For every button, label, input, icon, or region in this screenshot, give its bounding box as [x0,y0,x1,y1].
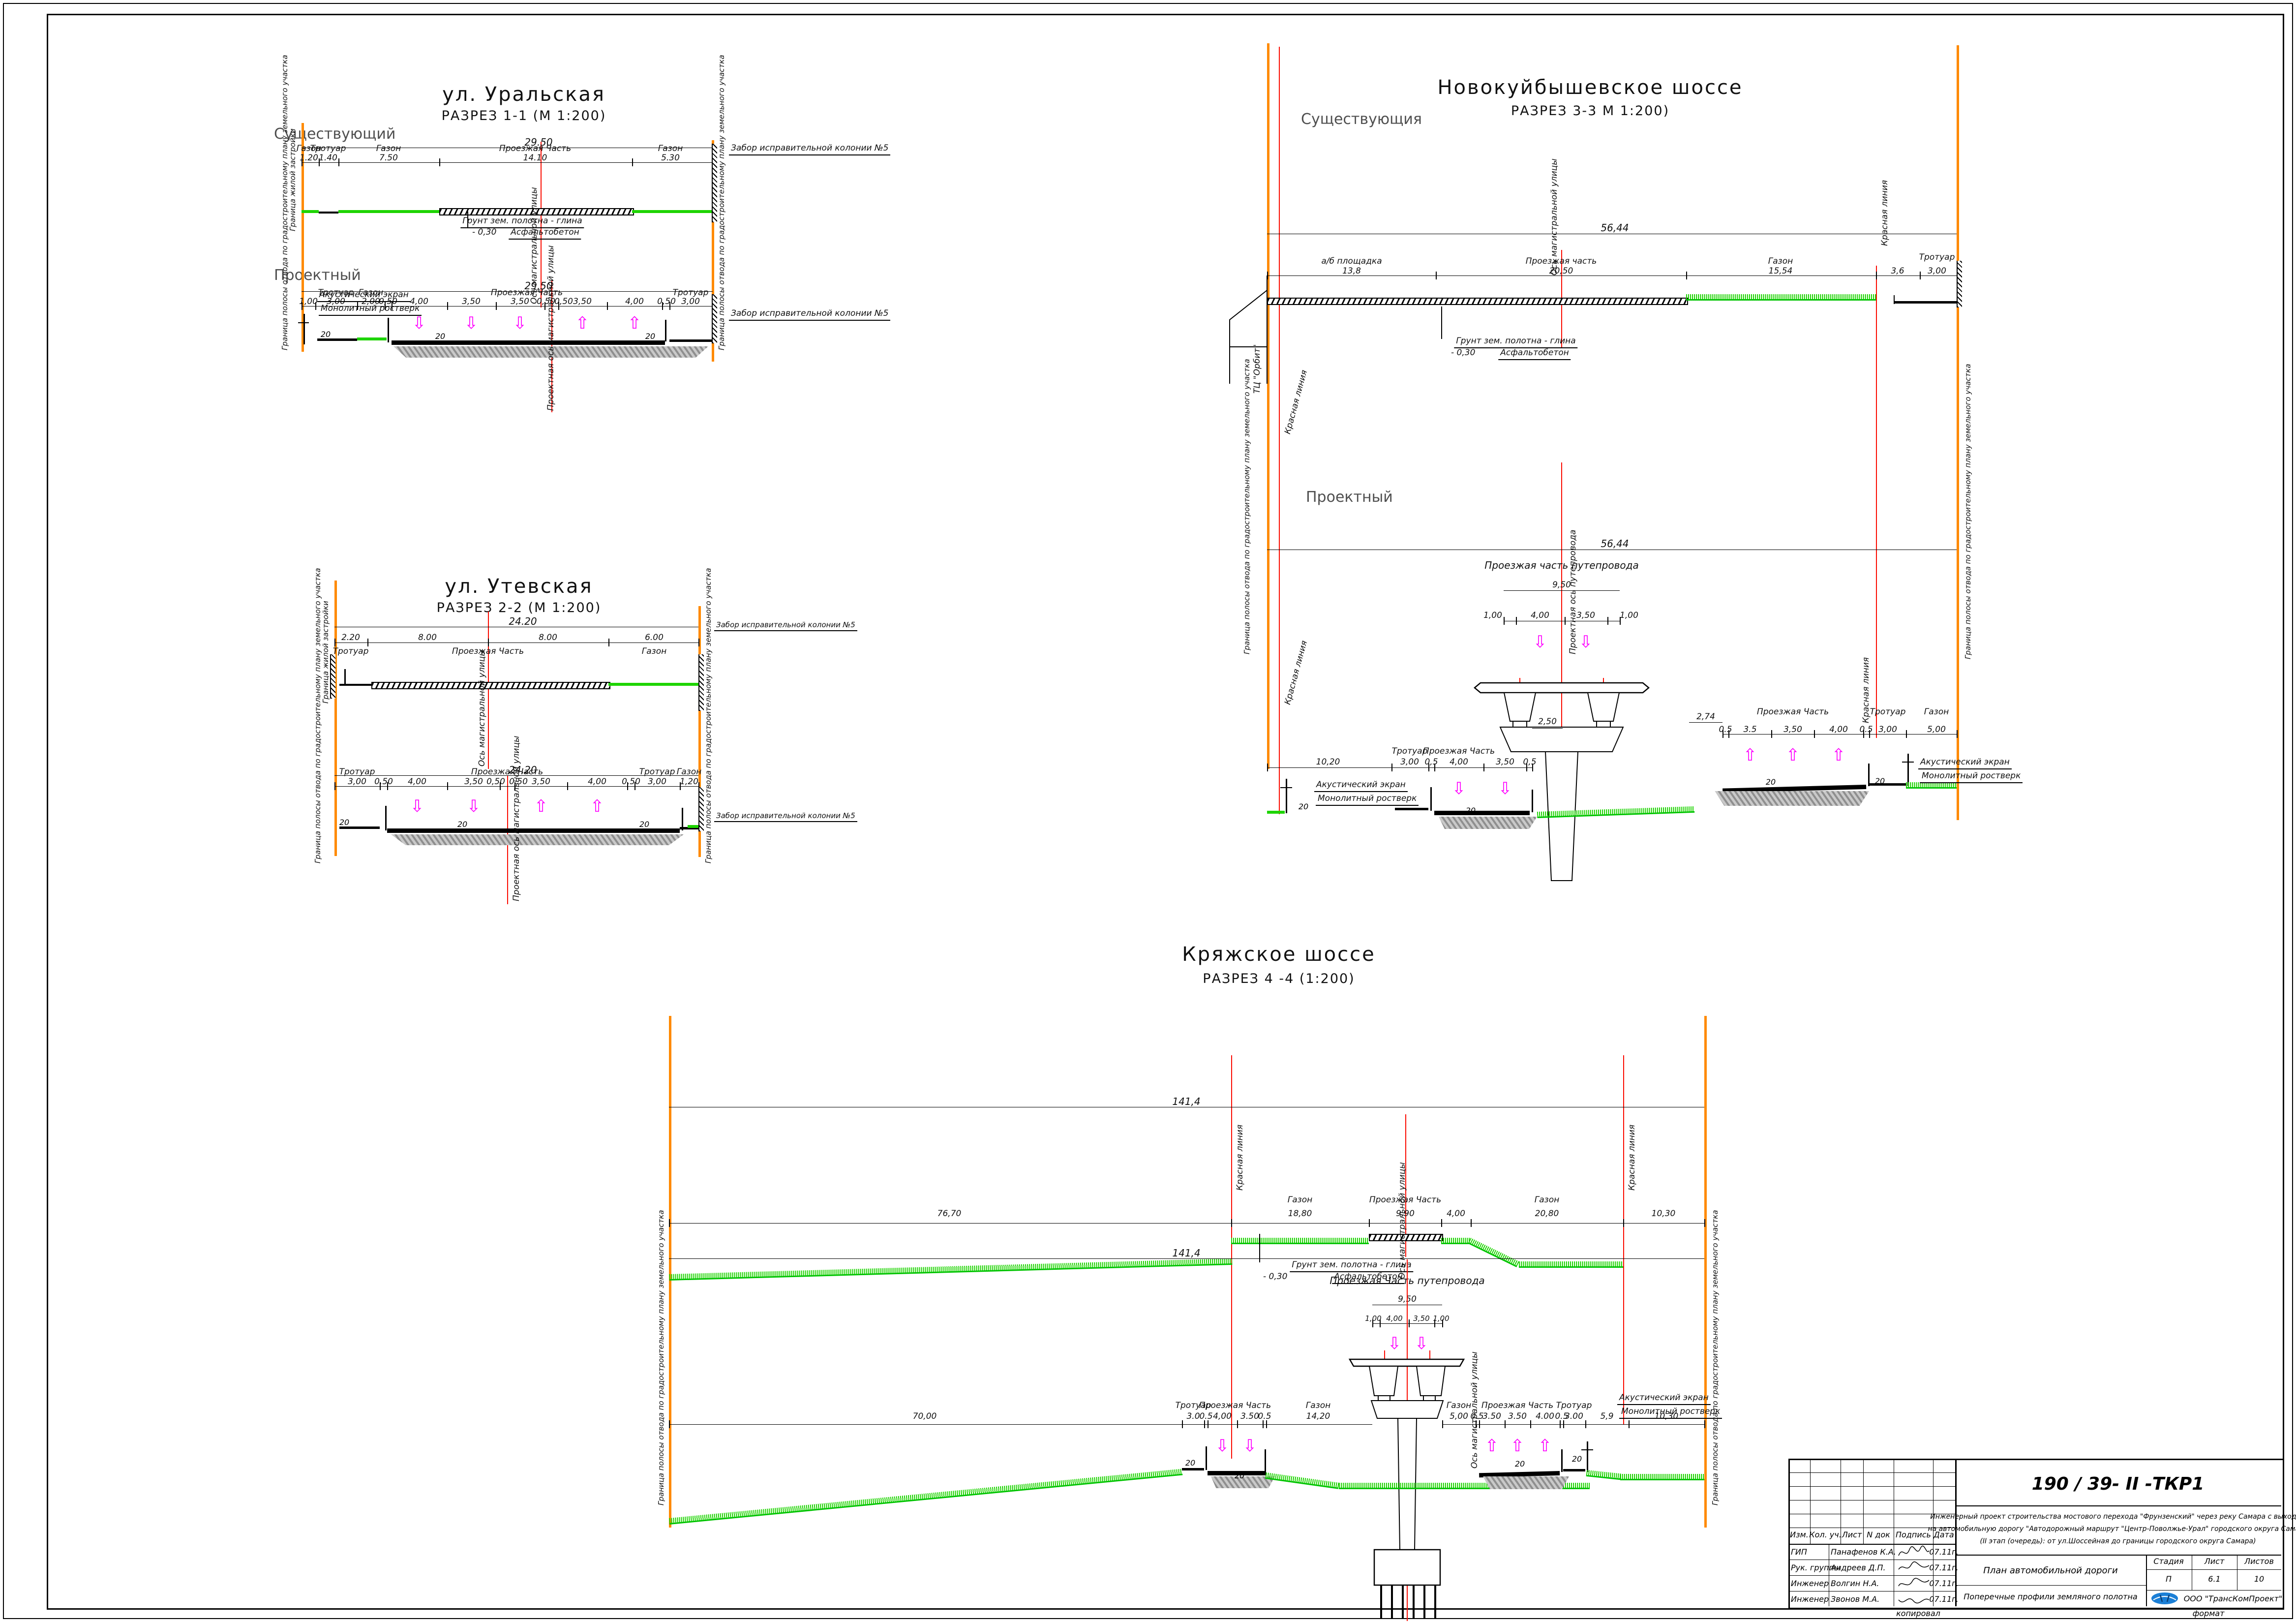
stamp-line [1788,1500,1955,1500]
slope-mark: 20 [1766,778,1776,786]
dim-value: 3.0 [1186,1412,1200,1422]
dim-value: 3.50 [1240,1412,1259,1422]
zone-label: Проезжая часть [1526,257,1597,267]
fence-hatch [698,787,704,831]
zone-label: Тротуар [333,647,369,657]
design-label: Проектный [1306,490,1393,505]
slope-arrow-up: ⇧ [1743,747,1757,764]
sheet-value: 6.1 [2208,1575,2220,1583]
curb-post [1532,790,1533,812]
fence-hatch [330,654,335,699]
dim-value: 70,00 [913,1412,937,1422]
dim-value: 3,50 [1783,725,1802,735]
border-label: Граница жилой застройки [322,601,330,704]
section2-title: ул. Утевская [445,577,593,596]
dim-value: 0.5 [1199,1412,1212,1422]
acoustic-screen-post [1907,754,1909,786]
lawn-strip [688,825,698,828]
acoustic-screen-note: Акустический экран [317,290,411,302]
slope-mark: 20 [645,333,655,340]
slope-arrow-down: ⇩ [412,315,426,332]
dim-value: 3,00 [1878,725,1897,735]
dim-value: 3,50 [462,297,481,307]
roadbase [1483,1476,1569,1489]
zone-label: Проезжая Часть [1199,1401,1271,1411]
tick [1442,1420,1443,1428]
red-line [1231,1055,1232,1459]
boundary-orange-line [1704,1016,1707,1528]
zone-label: Проезжая Часть [1757,707,1829,717]
dim-line [669,1107,1704,1107]
sidewalk [1563,1469,1585,1471]
tick [698,639,699,646]
section3-subtitle: РАЗРЕЗ 3-3 М 1:200) [1511,104,1669,118]
sheets-header: Листов [2244,1558,2274,1565]
zone-label: Проезжая Часть [499,144,571,154]
stamp-role: ГИП [1791,1548,1807,1556]
soil-level: - 0,30 [1451,348,1475,358]
tick [1560,1420,1561,1428]
lawn-strip [302,210,319,213]
tick [1267,272,1268,279]
slope-arrow-down: ⇩ [1498,780,1512,797]
dim-line [302,162,713,163]
tick [632,158,633,166]
border-label: Граница полосы отвода по градостроительн… [1243,359,1251,654]
stamp-line [1788,1560,1955,1560]
dim-value: 5,00 [1450,1412,1468,1422]
soil-note: Грунт зем. полотна - глина [1454,337,1577,348]
dim-total: 56,44 [1601,222,1629,234]
zone-label: Тротуар [339,767,375,777]
tick [1409,1319,1410,1327]
acoustic-screen-note: Акустический экран [1314,780,1408,792]
tick [1237,1420,1238,1428]
axis-label: Проектная ось магистральной улицы [513,736,521,901]
axis-label: Ось магистральной улицы [1471,1351,1479,1469]
stamp-line [1788,1575,1955,1576]
fence-hatch [698,654,704,711]
dim-value: 4,00 [1447,1209,1465,1219]
overpass-label: Проезжая часть путепровода [1484,560,1638,571]
border-label: Граница полосы отвода по градостроительн… [281,55,289,350]
dim-value: 3.50 [1482,1412,1501,1422]
fence-hatch [712,294,717,343]
dim-value: 7.50 [379,153,398,163]
red-line-label: Красная линия [1236,1125,1244,1191]
lawn-strip [357,337,387,340]
dim-line [1689,722,1722,723]
zone-label: Тротуар [639,767,675,777]
slope-mark: 20 [639,821,649,828]
dim-total: 24.20 [509,616,537,627]
zone-label: Тротуар [1556,1401,1592,1411]
stamp-line [1788,1591,1955,1591]
tick [1204,1420,1205,1428]
grass-strip [1441,1238,1471,1244]
tick [1436,272,1437,279]
dim-value: 4,00 [1531,611,1549,621]
dim-line [669,1223,1704,1224]
dim-line [669,1258,1704,1259]
stamp-col-header: Лист [1842,1531,1862,1539]
screen-crossbar [1280,787,1292,788]
tick [1441,1219,1442,1227]
red-line [1876,266,1877,738]
tick [1483,764,1484,771]
sheets-value: 10 [2254,1575,2264,1583]
zone-label: Газон [642,647,666,657]
drawing-sheet: ул. Уральская РАЗРЕЗ 1-1 (М 1:200) Сущес… [0,0,2296,1622]
format-label: формат [2193,1610,2225,1618]
slope-arrow-up: ⇧ [628,315,642,332]
dim-value: 5.30 [661,153,680,163]
grass-strip [1686,294,1876,301]
slope-mark: 20 [1185,1459,1195,1467]
section4-title: Кряжское шоссе [1182,945,1376,964]
fence-note: Забор исправительной колонии №5 [714,812,857,822]
stamp-line [1955,1505,2281,1506]
tick [1920,272,1921,279]
boundary-orange-line [334,581,337,856]
dim-value: 0,50 [374,777,393,787]
slope-mark: 20 [1235,1472,1244,1480]
acoustic-screen-post [1587,1441,1588,1472]
stamp-line [2237,1555,2237,1590]
curb-post [665,320,666,341]
tick [1263,1420,1264,1428]
stamp-name: Звонов М.А. [1831,1595,1879,1603]
boundary-orange-line [1957,45,1959,820]
axis-red-line [488,612,489,769]
slope-arrow-down: ⇩ [1243,1438,1257,1454]
dim-total: 141,4 [1172,1248,1200,1259]
section4-subtitle: РАЗРЕЗ 4 -4 (1:200) [1203,972,1355,985]
stage-header: Стадия [2153,1558,2183,1565]
dim-value: 3.00 [1565,1412,1583,1422]
tick [439,158,440,166]
tick [1369,1219,1370,1227]
rostverk-note: Монолитный ростверк [1316,794,1419,806]
dim-value: 20,80 [1535,1209,1559,1219]
dim-value: 3,50 [1413,1315,1429,1323]
tick [698,782,699,790]
dim-value: 8.00 [539,633,557,643]
soil-note: Грунт зем. полотна - глина [460,216,584,228]
red-line-label: Красная линия [1881,180,1889,246]
dim-value: 4,00 [1386,1315,1402,1323]
zone-label: Газон [1288,1195,1312,1205]
stamp-col-header: Кол. уч. [1809,1531,1842,1539]
axis-label: Проектная ось путепровода [1569,530,1577,654]
dim-line [1267,234,1957,234]
dim-value: 10,20 [1316,758,1340,767]
tick [1957,730,1958,738]
tick [447,782,448,790]
slope-mark: 20 [321,331,331,338]
border-label: Граница жилой застройки [289,128,297,231]
dim-value: 1.20 [300,153,318,163]
screen-crossbar [1581,1449,1593,1450]
dim-line [1532,728,1563,729]
stamp-name: Андреев Д.П. [1831,1564,1886,1572]
dim-value: 0.5 [1719,725,1732,735]
dim-value: 3,50 [464,777,483,787]
dim-value: 3,00 [348,777,366,787]
zone-label: Проезжая Часть [452,647,524,657]
slope-arrow-down: ⇩ [1415,1335,1429,1352]
tick [447,302,448,310]
dim-total: 56,44 [1601,538,1629,550]
company-logo [2150,1592,2179,1605]
tick [1906,730,1907,738]
dim-value: 3,50 [532,777,550,787]
zone-label: Газон [1447,1401,1471,1411]
tick [1267,764,1268,771]
stamp-line [1955,1585,2146,1586]
fence-note: Забор исправительной колонии №5 [729,309,890,321]
soil-note: Грунт зем. полотна - глина [1290,1260,1413,1272]
grass-strip [1906,782,1957,789]
stamp-line [1788,1472,1955,1473]
soil-level: - 0,30 [472,228,496,238]
signature [1897,1576,1931,1590]
dim-value: 3,00 [1928,267,1946,276]
dim-line [1267,767,1532,768]
tick [1629,1420,1630,1428]
roadbase [1712,791,1869,806]
red-line [1279,47,1280,814]
tick [1686,272,1687,279]
doc-number: 190 / 39- II -ТКР1 [2032,1474,2205,1494]
project-desc-line3: (II этап (очередь): от ул.Шоссейная до г… [1980,1538,2256,1545]
slope-arrow-up: ⇧ [1832,747,1846,764]
curb-post [388,318,389,342]
dim-value: 2,50 [1538,717,1557,727]
tick [712,302,713,310]
tick [1607,617,1608,625]
dim-value: 2,74 [1696,712,1715,722]
lawn-strip [1267,811,1285,814]
slope-mark: 20 [435,333,445,340]
dim-value: 5,9 [1600,1412,1613,1422]
slope-arrow-up: ⇧ [575,315,590,332]
slope-arrow-down: ⇩ [467,798,481,815]
zone-label: Газон [376,144,401,154]
slope-arrow-down: ⇩ [1388,1335,1402,1352]
tick [1182,1420,1183,1428]
slope-arrow-down: ⇩ [1452,780,1466,797]
zone-label: Тротуар [1870,707,1906,717]
tick [1585,1420,1586,1428]
roadbase [391,834,684,845]
rostverk-note: Монолитный ростверк [319,304,422,316]
sheet-header: Лист [2205,1558,2225,1565]
border-label: Граница полосы отвода по градостроительн… [718,55,725,350]
tick [1563,1420,1564,1428]
section1-title: ул. Уральская [442,85,605,104]
axis-label: Ось магистральной улицы [1398,1162,1407,1279]
dim-value: 6.00 [645,633,664,643]
slope-arrow-up: ⇧ [1538,1438,1552,1454]
section3-title: Новокуйбышевское шоссе [1437,78,1743,97]
tc-orbit-label: ТЦ "Орбит" [1253,344,1262,394]
dim-value: 3,50 [1576,611,1595,621]
stamp-date: 07.11г. [1929,1580,1958,1588]
tick [1505,1420,1506,1428]
acoustic-screen-post [303,314,305,344]
stamp-role: Инженер [1791,1580,1829,1588]
border-label: Граница полосы отвода по градостроительн… [658,1210,665,1505]
curb-post [1265,1449,1266,1472]
axis-label: Проектная ось магистральной улицы [547,245,555,411]
dim-value: 1,20 [680,777,698,787]
soil-cover: Асфальтобетон [509,228,581,240]
rostverk-note: Монолитный ростверк [1619,1407,1722,1419]
sidewalk [319,212,338,214]
note-leader [1441,306,1442,339]
dim-value: 1,00 [1483,611,1502,621]
tick [1565,617,1566,625]
curb-post [385,806,387,830]
dim-value: 18,80 [1288,1209,1312,1219]
zone-label: Газон [1535,1195,1559,1205]
tick [334,639,335,646]
stamp-name: Панафенов К.А. [1831,1548,1896,1556]
slope-arrow-up: ⇧ [590,798,604,815]
tick [1266,1420,1267,1428]
dim-value: 4,00 [1213,1412,1232,1422]
tick [1623,1219,1624,1227]
fence-hatch [712,144,717,222]
lawn-strip [608,683,698,686]
zone-label: Газон [658,144,683,154]
dim-value: 0.5 [1859,725,1873,735]
project-desc-line2: на автомобильную дорогу "Автодорожный ма… [1928,1526,2296,1532]
red-line-label: Красная линия [1628,1125,1636,1191]
slope-arrow-down: ⇩ [513,315,527,332]
tick [1471,1219,1472,1227]
signature [1897,1592,1931,1606]
dim-line [1267,550,1957,550]
stage-value: П [2166,1575,2172,1583]
dim-line [1442,1424,1704,1425]
dim-value: 0,5 [1523,758,1536,767]
road-surface [1434,811,1530,815]
tick [608,639,609,646]
red-line-label: Красная линия [1862,657,1871,723]
tick [496,302,497,310]
stamp-line [2146,1569,2281,1570]
slope-mark: 20 [1299,803,1308,811]
grass-strip [1231,1238,1369,1244]
sidewalk [1182,1468,1204,1470]
dim-value: 0,50 [554,297,573,307]
dim-value: 8.00 [418,633,437,643]
zone-label: Проезжая Часть [1423,747,1495,757]
dim-line [1504,621,1620,621]
border-label: Граница полосы отвода по градостроительн… [314,568,322,863]
dim-value: 1,00 [299,297,318,307]
curb-post [1430,787,1432,811]
sidewalk [339,684,371,686]
slope-arrow-up: ⇧ [1786,747,1800,764]
dim-value: 0.5 [1258,1412,1271,1422]
drawing-title: План автомобильной дороги [1983,1566,2117,1575]
stamp-line [1863,1459,1864,1544]
tick [488,639,489,646]
slope-arrow-up: ⇧ [1511,1438,1525,1454]
slope-arrow-down: ⇩ [1533,634,1547,650]
dim-value: 3.5 [1743,725,1756,735]
zone-label: Тротуар [1919,253,1955,263]
lawn-strip [632,210,712,213]
road-surface [392,340,665,345]
dim-value: 4,00 [1829,725,1848,735]
screen-crossbar [298,322,309,323]
zone-label: Газон [1306,1401,1330,1411]
dim-line [1504,590,1620,591]
rostverk-note: Монолитный ростверк [1920,771,2023,783]
fence-note: Забор исправительной колонии №5 [729,144,890,155]
soil-cover: Асфальтобетон [1498,348,1571,360]
dim-value: 14,20 [1306,1412,1330,1422]
project-desc-line1: Инженерный проект строительства мостовог… [1930,1513,2296,1520]
acoustic-screen-post [1286,779,1287,813]
section2-subtitle: РАЗРЕЗ 2-2 (М 1:200) [437,601,602,614]
tick [338,158,339,166]
road-hatch [1267,298,1688,305]
slope-mark: 20 [1875,777,1885,785]
dim-value: 1,00 [1365,1315,1381,1323]
slope-arrow-down: ⇩ [1579,634,1593,650]
dim-value: 3,50 [573,297,592,307]
tick [669,1219,670,1227]
dim-value: 4,00 [408,777,426,787]
dim-value: 3,00 [1400,758,1419,767]
dim-value: 4.00 [1536,1412,1554,1422]
tick [1231,1219,1232,1227]
screen-crossbar [1902,762,1914,763]
slope-mark: 20 [1515,1460,1525,1468]
zone-label: Проезжая Часть [1481,1401,1553,1411]
tick [1391,764,1392,771]
roadbase [1439,817,1537,829]
stamp-line [1955,1555,2281,1556]
tick [1704,1420,1705,1428]
stamp-line [2192,1555,2192,1590]
dim-value: 0,50 [657,297,676,307]
dim-value: 1,00 [1433,1315,1449,1323]
acoustic-screen-note: Акустический экран [1918,758,2012,769]
tick [1530,1420,1531,1428]
dim-value: 4,00 [625,297,644,307]
section1-subtitle: РАЗРЕЗ 1-1 (М 1:200) [442,109,606,122]
stamp-line [2146,1555,2147,1606]
stamp-name: Волгин Н.А. [1831,1580,1879,1588]
curb-post [1206,1446,1207,1470]
dim-value: 76,70 [937,1209,962,1219]
dim-value: 4,00 [1450,758,1468,767]
bridge-pier-figure [1471,674,1653,881]
stamp-col-header: Изм. [1790,1531,1809,1539]
tick [1504,617,1505,625]
stamp-col-header: N док [1867,1531,1890,1539]
slope-arrow-up: ⇧ [1485,1438,1499,1454]
dim-value: 5,00 [1927,725,1946,735]
tick [334,782,335,790]
acoustic-screen-note: Акустический экран [1617,1393,1711,1405]
